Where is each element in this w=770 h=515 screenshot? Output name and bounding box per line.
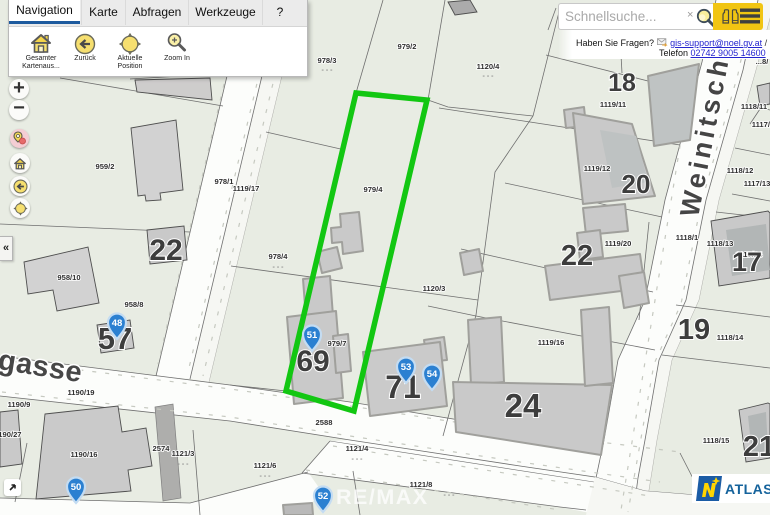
svg-text:978/1: 978/1 [214,177,234,186]
svg-text:1120/4: 1120/4 [477,62,501,71]
svg-text:978/3: 978/3 [317,56,336,65]
svg-text:- - -: - - - [352,456,364,463]
svg-text:- - -: - - - [178,461,190,468]
svg-text:53: 53 [401,362,412,373]
svg-text:978/4: 978/4 [268,252,288,261]
svg-text:979/7: 979/7 [327,339,346,348]
svg-text:2574: 2574 [153,444,171,453]
svg-text:1118/14: 1118/14 [717,333,744,342]
svg-text:1119/11: 1119/11 [600,100,627,109]
svg-text:- - -: - - - [273,264,285,271]
svg-text:958/10: 958/10 [57,273,80,282]
svg-text:50: 50 [71,482,82,493]
svg-text:21: 21 [743,431,770,463]
svg-text:1119/20: 1119/20 [605,239,632,248]
svg-text:22: 22 [561,240,593,272]
svg-text:24: 24 [505,387,542,424]
svg-text:52: 52 [318,491,329,502]
svg-text:1117/13: 1117/13 [744,179,770,188]
svg-text:17: 17 [732,247,762,277]
svg-text:1120/3: 1120/3 [423,284,446,293]
svg-text:979/2: 979/2 [397,42,416,51]
svg-text:958/8: 958/8 [124,300,143,309]
svg-text:1117/1: 1117/1 [752,120,770,129]
svg-text:1118/13: 1118/13 [707,239,734,248]
svg-text:1118/15: 1118/15 [703,436,730,445]
svg-text:- - -: - - - [444,492,456,499]
svg-text:1121/3: 1121/3 [172,449,195,458]
svg-text:1121/6: 1121/6 [254,461,277,470]
svg-text:1118/11: 1118/11 [741,102,768,111]
svg-text:1190/16: 1190/16 [70,450,97,459]
svg-text:979/4: 979/4 [363,185,383,194]
svg-text:959/2: 959/2 [95,162,114,171]
svg-text:1118/1: 1118/1 [676,233,699,242]
svg-text:1121/4: 1121/4 [346,444,370,453]
svg-text:2588: 2588 [316,418,333,427]
svg-text:RE/MAX: RE/MAX [336,485,429,509]
svg-text:1190/27: 1190/27 [0,430,22,439]
svg-text:1190/9: 1190/9 [8,400,31,409]
svg-text:1119/12: 1119/12 [584,164,611,173]
svg-text:51: 51 [307,330,318,341]
svg-text:54: 54 [427,369,438,380]
svg-text:- - -: - - - [483,73,495,80]
svg-text:48: 48 [112,318,123,329]
svg-text:19: 19 [678,314,710,346]
svg-text:- - -: - - - [322,67,334,74]
svg-text:20: 20 [622,169,651,199]
svg-text:1190/19: 1190/19 [67,388,94,397]
svg-text:18: 18 [608,69,636,97]
svg-text:- - -: - - - [260,473,272,480]
svg-text:1119/17: 1119/17 [233,184,260,193]
svg-text:1119/16: 1119/16 [538,338,565,347]
svg-text:1118/12: 1118/12 [727,166,754,175]
svg-text:22: 22 [149,234,182,267]
